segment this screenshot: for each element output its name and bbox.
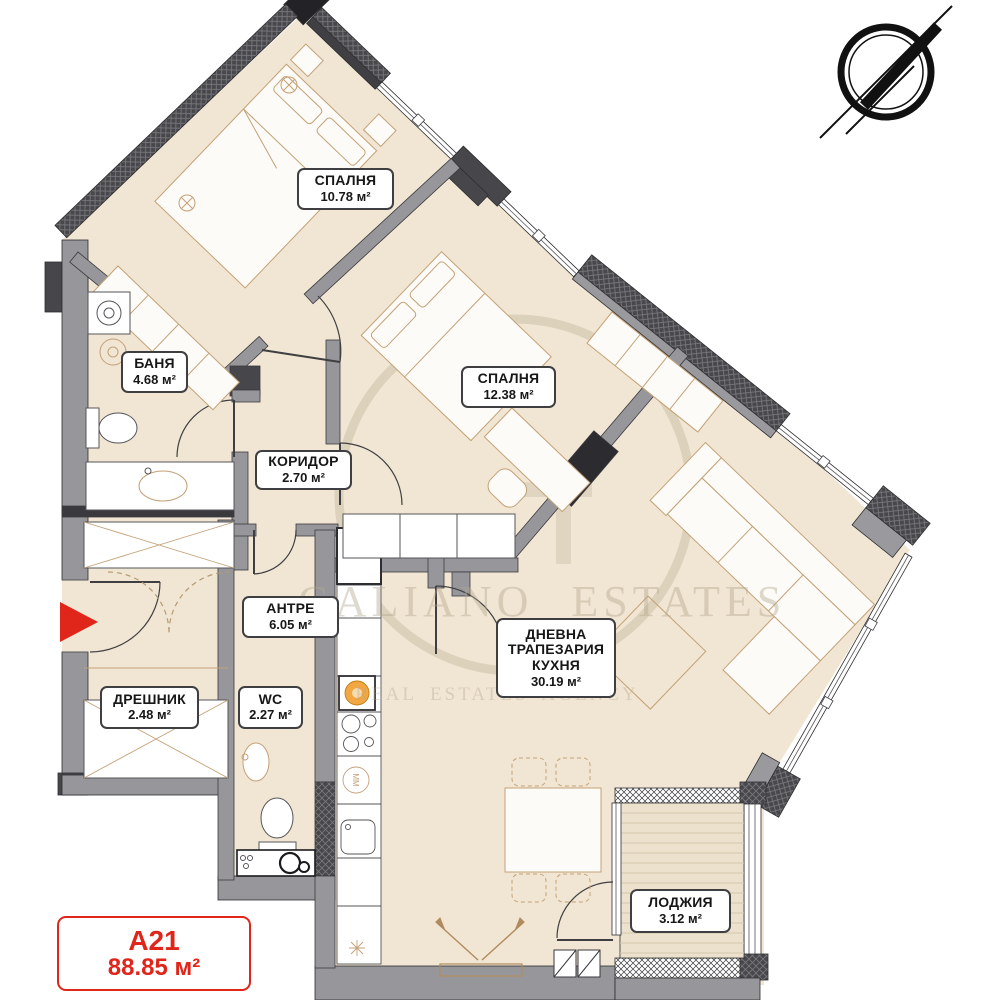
svg-text:MM: MM xyxy=(351,773,360,787)
room-label-living-dining-kitchen: ДНЕВНА ТРАПЕЗАРИЯ КУХНЯ 30.19 м² xyxy=(496,618,616,698)
room-label-bathroom: БАНЯ 4.68 м² xyxy=(121,351,188,393)
room-name: ЛОДЖИЯ xyxy=(648,895,712,911)
room-area: 10.78 м² xyxy=(320,190,370,205)
dishwasher-star-icon xyxy=(349,940,365,956)
unit-badge: A21 88.85 м² xyxy=(57,916,251,991)
room-area: 2.70 м² xyxy=(282,471,325,486)
room-name: СПАЛНЯ xyxy=(315,173,377,189)
room-name: АНТРЕ xyxy=(266,601,314,617)
closet-icon xyxy=(84,522,234,568)
room-label-bedroom-1: СПАЛНЯ 10.78 м² xyxy=(297,168,394,210)
room-label-corridor: КОРИДОР 2.70 м² xyxy=(255,450,352,490)
room-label-wc: WC 2.27 м² xyxy=(238,686,303,729)
room-name: ДНЕВНА ТРАПЕЗАРИЯ КУХНЯ xyxy=(501,627,611,674)
loggia-walls xyxy=(612,782,768,980)
room-label-loggia: ЛОДЖИЯ 3.12 м² xyxy=(630,889,731,933)
room-area: 4.68 м² xyxy=(133,373,176,388)
room-area: 12.38 м² xyxy=(483,388,533,403)
room-name: КОРИДОР xyxy=(268,454,338,470)
kitchen-sink-icon xyxy=(341,820,375,854)
room-label-bedroom-2: СПАЛНЯ 12.38 м² xyxy=(461,366,556,408)
room-area: 2.48 м² xyxy=(128,708,171,723)
room-label-entry-hall: АНТРЕ 6.05 м² xyxy=(242,596,339,638)
room-name: СПАЛНЯ xyxy=(478,371,540,387)
corridor-cabinet-icon xyxy=(343,514,515,558)
north-compass-icon xyxy=(820,6,952,138)
washing-machine-icon: MM xyxy=(343,767,369,793)
floorplan-page: MM xyxy=(0,0,1000,1000)
unit-code: A21 xyxy=(128,926,179,955)
room-name: БАНЯ xyxy=(134,356,175,372)
room-name: WC xyxy=(259,692,283,708)
room-area: 6.05 м² xyxy=(269,618,312,633)
room-area: 30.19 м² xyxy=(531,675,581,690)
room-area: 3.12 м² xyxy=(659,912,702,927)
room-label-dressing-room: ДРЕШНИК 2.48 м² xyxy=(100,686,199,729)
unit-total-area: 88.85 м² xyxy=(108,955,200,981)
kitchen-counter: MM xyxy=(337,528,381,964)
room-area: 2.27 м² xyxy=(249,708,292,723)
floorplan-drawing: MM xyxy=(0,0,1000,1000)
room-name: ДРЕШНИК xyxy=(113,692,186,708)
